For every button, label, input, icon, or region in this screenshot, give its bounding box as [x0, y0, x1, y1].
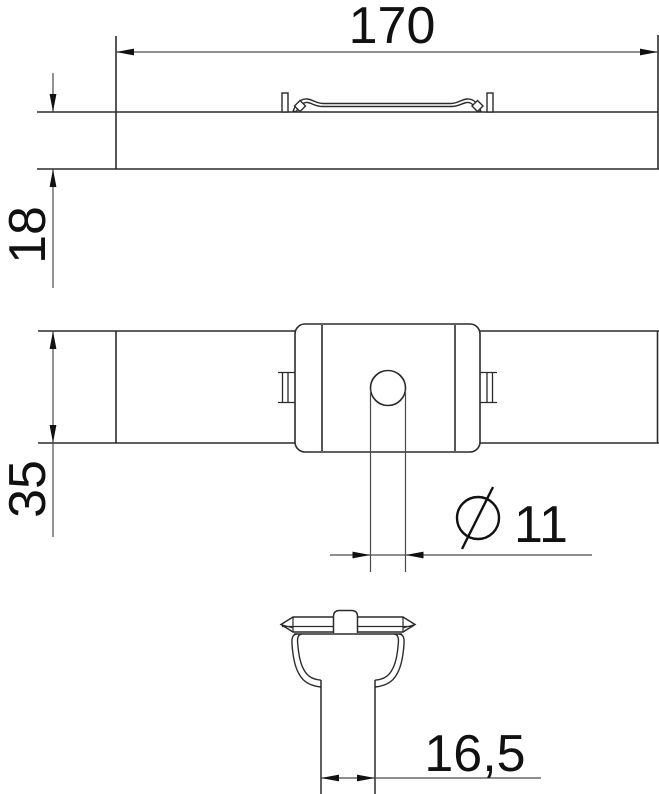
dimension-thickness: 18 [0, 73, 57, 288]
dim-label-thickness: 18 [0, 206, 57, 264]
top-view [38, 324, 659, 452]
hole-circle [371, 371, 406, 406]
arrowhead-up [50, 169, 57, 187]
dim-label-width: 35 [0, 460, 57, 518]
spring-clip [282, 93, 493, 112]
arrowhead-down [50, 94, 57, 112]
clamp-profile [292, 634, 404, 687]
arrowhead-down [50, 425, 57, 443]
arrowhead-left [321, 775, 339, 782]
section-view [281, 611, 415, 794]
dimension-length: 170 [116, 0, 658, 55]
arrowhead-right [357, 775, 375, 782]
bucket-inner-right [375, 634, 398, 680]
technical-drawing: 170 18 [0, 0, 659, 794]
section-centre-tab [334, 611, 358, 634]
bucket-inner-left [298, 634, 321, 680]
arrowhead-left [116, 49, 134, 56]
diameter-symbol [457, 487, 499, 549]
clip-right-tab [487, 93, 493, 112]
side-view [37, 35, 659, 169]
dim-label-hole-diameter: 11 [514, 496, 568, 554]
left-side-tab [278, 373, 295, 403]
arrowhead-left [406, 552, 424, 559]
dimension-stem-width: 16,5 [321, 725, 541, 783]
dim-label-stem-width: 16,5 [424, 725, 525, 783]
drawing-canvas: 170 18 [0, 0, 659, 794]
dimension-width: 35 [0, 331, 57, 537]
arrowhead-right [353, 552, 371, 559]
clip-left-tab [282, 93, 288, 112]
dim-label-length: 170 [349, 0, 436, 55]
arrowhead-up [50, 331, 57, 349]
clip-strip [293, 99, 481, 112]
arrowhead-right [640, 49, 658, 56]
right-side-tab [480, 373, 497, 403]
